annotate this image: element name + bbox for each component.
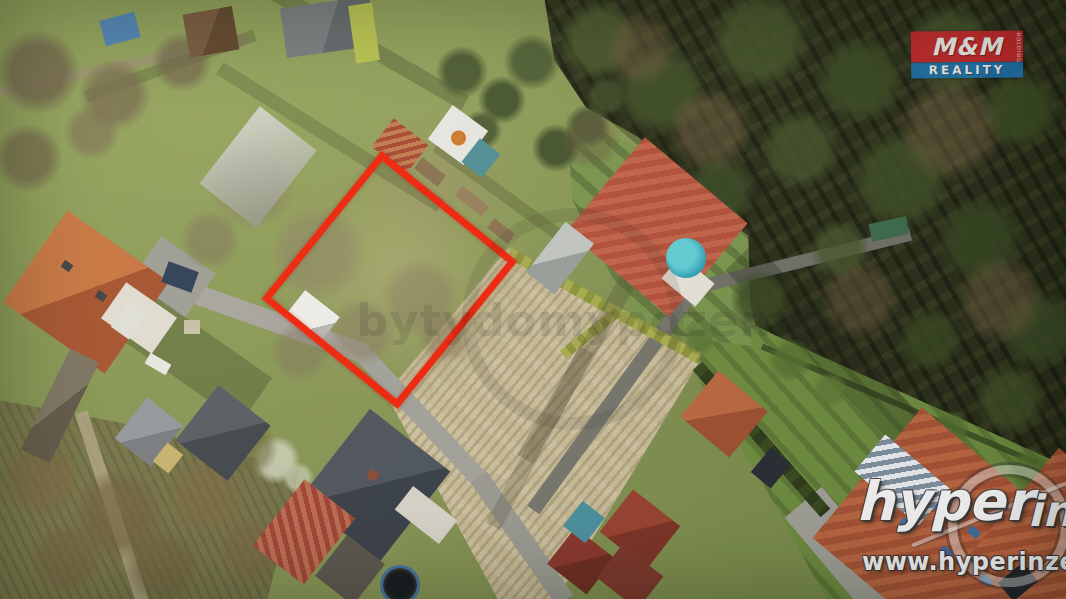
aerial-photo: bytydomypozemky M&M HOLDING REALITY hype… xyxy=(0,0,1066,599)
photo-vignette xyxy=(0,0,1066,599)
